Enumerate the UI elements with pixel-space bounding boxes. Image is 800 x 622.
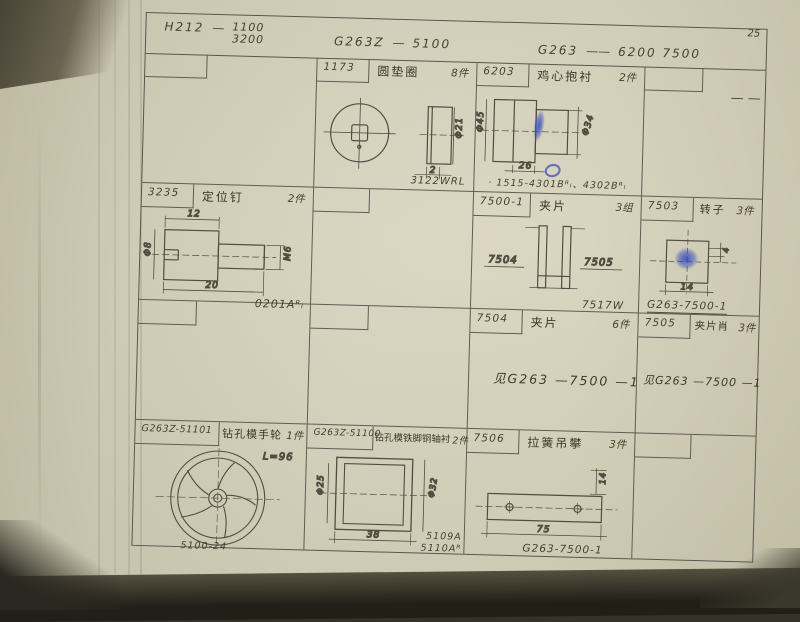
- part-number-tab: 7505: [638, 313, 691, 338]
- ref-code: G263-7500-1: [522, 542, 602, 556]
- part-title: 鸡心抱衬: [529, 63, 596, 89]
- dim-height: 14: [598, 472, 608, 485]
- dash: —: [392, 36, 404, 50]
- dash: —: [212, 21, 224, 35]
- see-reference: 见G263 —7500 —1: [493, 368, 640, 391]
- paper-crease: [38, 120, 41, 560]
- photographed-drawing-page: 25 H212 — 1100 3200 G263Z — 5100: [0, 0, 800, 600]
- dim-note: L=96: [263, 451, 294, 463]
- part-qty: 6件: [612, 313, 638, 338]
- dim-thickness: 2: [430, 166, 437, 176]
- photo-corner-shadow: [0, 520, 120, 610]
- model-code: G263Z: [334, 34, 385, 49]
- parts-table: H212 — 1100 3200 G263Z — 5100 G263 —— 62…: [131, 12, 767, 563]
- part-number-tab: 7500-1: [473, 192, 531, 218]
- drawing-sheet: 25 H212 — 1100 3200 G263Z — 5100: [131, 6, 780, 589]
- part-number-tab: 6203: [477, 62, 530, 87]
- ref-code: · 1515-4301Bᴿₗ、4302Bᴿₗ: [488, 174, 626, 192]
- part-qty: 1件: [286, 424, 307, 449]
- part-title: 钻孔模手轮: [219, 422, 285, 448]
- dim-small: 4: [722, 247, 731, 253]
- bushing-drawing: Φ25 Φ32 38 5109A 5110Aᴿ: [304, 449, 466, 551]
- cell-spring-hanger: 7506 拉簧吊攀 3件: [464, 429, 635, 558]
- header-group-g263: G263 —— 6200 7500: [538, 43, 701, 61]
- washer-drawing: Φ21 2 3122WRL: [314, 82, 476, 186]
- part-title: 夹片: [531, 193, 570, 218]
- part-number-tab: G263Z-51101: [135, 420, 219, 446]
- dim-length: 38: [367, 530, 381, 540]
- model-code: H212: [164, 20, 204, 35]
- handwheel-drawing: L=96 5100-24: [132, 444, 306, 549]
- part-number-tab: 7504: [470, 309, 523, 334]
- ref-code: 3122WRL: [410, 175, 465, 187]
- part-number-tab-empty: [645, 67, 704, 93]
- part-number-tab-empty: [635, 433, 692, 459]
- cell-clip-set: 7500-1 夹片 3组 7504 7505: [471, 192, 642, 314]
- dim-diameter: Φ32: [427, 477, 440, 499]
- part-qty: 3件: [736, 199, 762, 224]
- part-title: 拉簧吊攀: [519, 430, 586, 456]
- cell-handwheel: G263Z-51101 钻孔模手轮 1件: [132, 420, 307, 550]
- dim-width: 14: [680, 283, 694, 293]
- header-number: 6200 7500: [618, 45, 701, 61]
- cell-pin: 3235 定位钉 2件: [139, 183, 314, 305]
- ref-code: 7517W: [582, 299, 624, 312]
- part-title: 夹片: [522, 310, 561, 335]
- label-right-part: 7505: [584, 257, 614, 269]
- ref-code: 5100-24: [180, 540, 227, 552]
- part-title: 圆垫圈: [369, 59, 422, 84]
- ref-code: G263-7500-1: [647, 299, 728, 315]
- part-qty: 2件: [619, 66, 645, 91]
- header-group-h212: H212 — 1100 3200: [164, 20, 265, 47]
- cell-clip-piece: 7504 夹片 6件 见G263 —7500 —1: [468, 309, 639, 434]
- ref-code: 5110Aᴿ: [420, 543, 461, 555]
- dim-thread: M6: [283, 245, 293, 261]
- part-qty: 3组: [615, 196, 641, 221]
- part-qty: 3件: [609, 433, 635, 458]
- blue-ink-mark: [673, 246, 700, 271]
- part-number-tab-empty: [138, 300, 197, 326]
- cell-clip-pin: 7505 夹片肖 3件 见G263 —7500 —1: [636, 313, 759, 436]
- part-qty: 2件: [287, 187, 313, 212]
- stepped-bushing-drawing: Φ45 Φ34 26 · 1515-4301Bᴿₗ、4302Bᴿₗ: [475, 86, 644, 178]
- part-title: 钻孔模铁脚铜轴衬: [373, 426, 453, 452]
- part-qty: 3件: [738, 316, 759, 341]
- continuation-dash: — —: [730, 91, 761, 107]
- part-number-tab-empty: [310, 305, 369, 331]
- cell-washer: 1173 圆垫圈 8件 Φ21: [314, 58, 477, 192]
- header-group-g263z: G263Z — 5100: [334, 34, 451, 51]
- dim-diameter: Φ25: [316, 474, 327, 495]
- cell-bronze-bushing: G263Z-51100 钻孔模铁脚铜轴衬 2件 Φ25 Φ32: [304, 425, 467, 554]
- dim-diameter: Φ21: [455, 117, 466, 139]
- model-code: G263: [538, 43, 579, 58]
- part-number-tab: 7506: [467, 429, 520, 454]
- clip-assembly-drawing: 7504 7505 7517W: [471, 216, 640, 300]
- cell-heart-bush: 6203 鸡心抱衬 2件 Φ45 Φ34: [474, 62, 645, 196]
- dim-diameter: Φ45: [476, 110, 487, 132]
- part-number-tab-empty: [313, 188, 370, 214]
- header-number: 5100: [412, 36, 451, 51]
- dim-length: 75: [537, 525, 551, 535]
- positioning-pin-drawing: 12 20 Φ8 M6 0201Aᴿₗ: [139, 207, 312, 302]
- ref-code: 5109A: [426, 531, 462, 543]
- part-number-tab: 1173: [317, 58, 370, 83]
- cell-r3c1-empty: [136, 300, 311, 425]
- cell-r3c2-empty: [308, 305, 471, 429]
- part-title: 转子: [693, 198, 728, 223]
- cell-r1c4-empty: — —: [642, 67, 765, 200]
- header-number: 3200: [232, 33, 264, 46]
- dim-total-length: 20: [205, 281, 219, 291]
- label-left-part: 7504: [488, 254, 518, 266]
- dim-length: 26: [519, 161, 533, 171]
- dim-head-length: 12: [187, 209, 201, 219]
- part-number-tab: 3235: [142, 183, 195, 208]
- part-title: 定位钉: [194, 184, 247, 209]
- cell-r2c2-empty: [311, 188, 474, 309]
- cell-r1c1-empty: [142, 53, 317, 188]
- spring-hanger-drawing: 14 75 G263-7500-1: [465, 453, 634, 545]
- dash: ——: [586, 44, 610, 59]
- part-qty: 8件: [451, 61, 477, 86]
- cell-rotor: 7503 转子 3件 4: [639, 196, 762, 316]
- cell-r4c4-empty: [632, 433, 755, 561]
- dim-diameter: Φ8: [143, 241, 153, 256]
- part-number-tab: 7503: [641, 196, 694, 221]
- see-reference: 见G263 —7500 —1: [643, 372, 762, 391]
- part-number-tab: G263Z-51100: [307, 425, 374, 451]
- rotor-drawing: 4 14 G263-7500-1: [639, 220, 761, 301]
- dim-diameter: Φ34: [581, 113, 597, 137]
- part-title: 夹片肖: [690, 315, 731, 340]
- part-number-tab-empty: [145, 53, 208, 79]
